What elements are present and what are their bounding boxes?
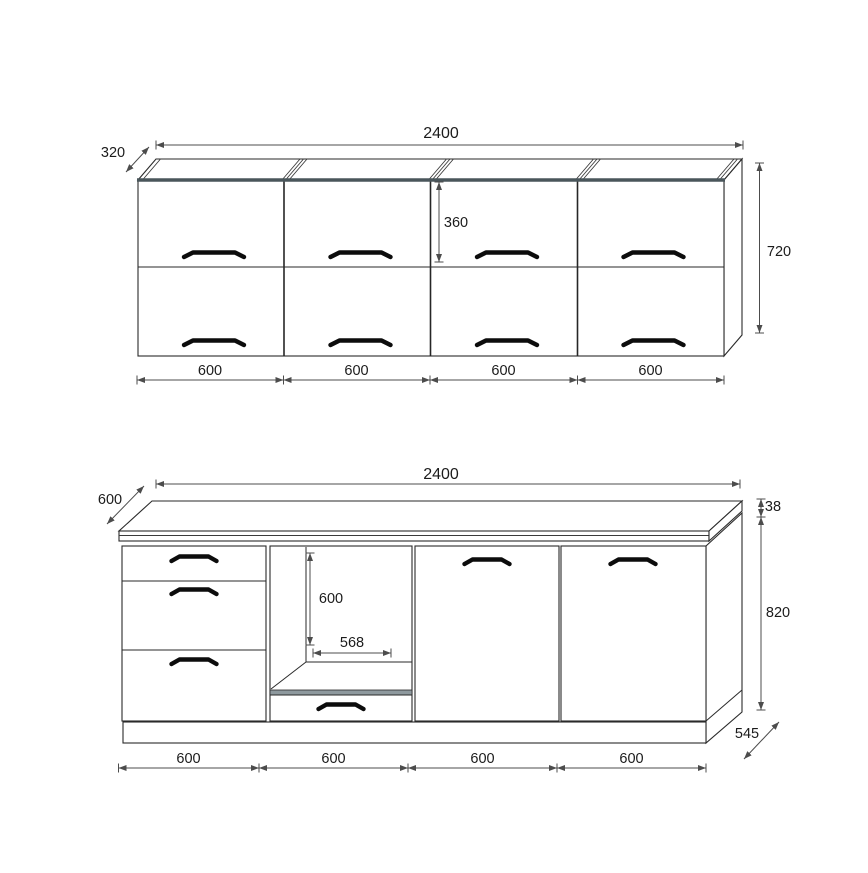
- wall-top-face: [138, 159, 742, 180]
- base-section-dim-label: 600: [176, 751, 200, 767]
- wall-front-face: [137, 180, 725, 356]
- wall-section-dim-label: 600: [198, 363, 222, 379]
- niche-height-dim-label: 600: [319, 591, 343, 607]
- niche-shelf-front-edge: [270, 690, 412, 695]
- wall-cabinets-drawing: 2400 320 720 360 600 600 600 600: [101, 125, 791, 384]
- door-unit-1: [415, 546, 559, 721]
- worktop: [119, 501, 742, 541]
- plinth: [123, 722, 706, 743]
- kitchen-cabinet-dimension-drawing: 2400 320 720 360 600 600 600 600: [0, 0, 868, 868]
- base-section-dim-label: 600: [321, 751, 345, 767]
- wall-section-dim-label: 600: [491, 363, 515, 379]
- oven-niche-unit: [270, 546, 412, 721]
- base-depth-dim-label: 600: [98, 492, 122, 508]
- drawing-canvas: 2400 320 720 360 600 600 600 600: [0, 0, 868, 868]
- wall-section-dim-label: 600: [638, 363, 662, 379]
- wall-door-height-dim-label: 360: [444, 215, 468, 231]
- base-width-dim-label: 2400: [423, 466, 459, 483]
- worktop-front-edge: [119, 531, 709, 541]
- wall-width-dim-label: 2400: [423, 125, 459, 142]
- base-right-side-face: [706, 513, 742, 743]
- wall-right-side-face: [724, 159, 742, 356]
- base-height-dim-label: 820: [766, 605, 790, 621]
- base-cabinets-drawing: 2400 600 38 820 545 600 568: [98, 466, 790, 772]
- wall-section-dim-label: 600: [344, 363, 368, 379]
- wall-depth-dim-label: 320: [101, 145, 125, 161]
- wall-height-dim-label: 720: [767, 244, 791, 260]
- niche-width-dim-label: 568: [340, 635, 364, 651]
- plinth-depth-dim-label: 545: [735, 726, 759, 742]
- base-section-dim-label: 600: [619, 751, 643, 767]
- base-section-dim-label: 600: [470, 751, 494, 767]
- door-unit-2: [561, 546, 706, 721]
- worktop-top-face: [119, 501, 742, 531]
- drawer-unit: [122, 546, 266, 721]
- worktop-thickness-dim-label: 38: [765, 499, 781, 515]
